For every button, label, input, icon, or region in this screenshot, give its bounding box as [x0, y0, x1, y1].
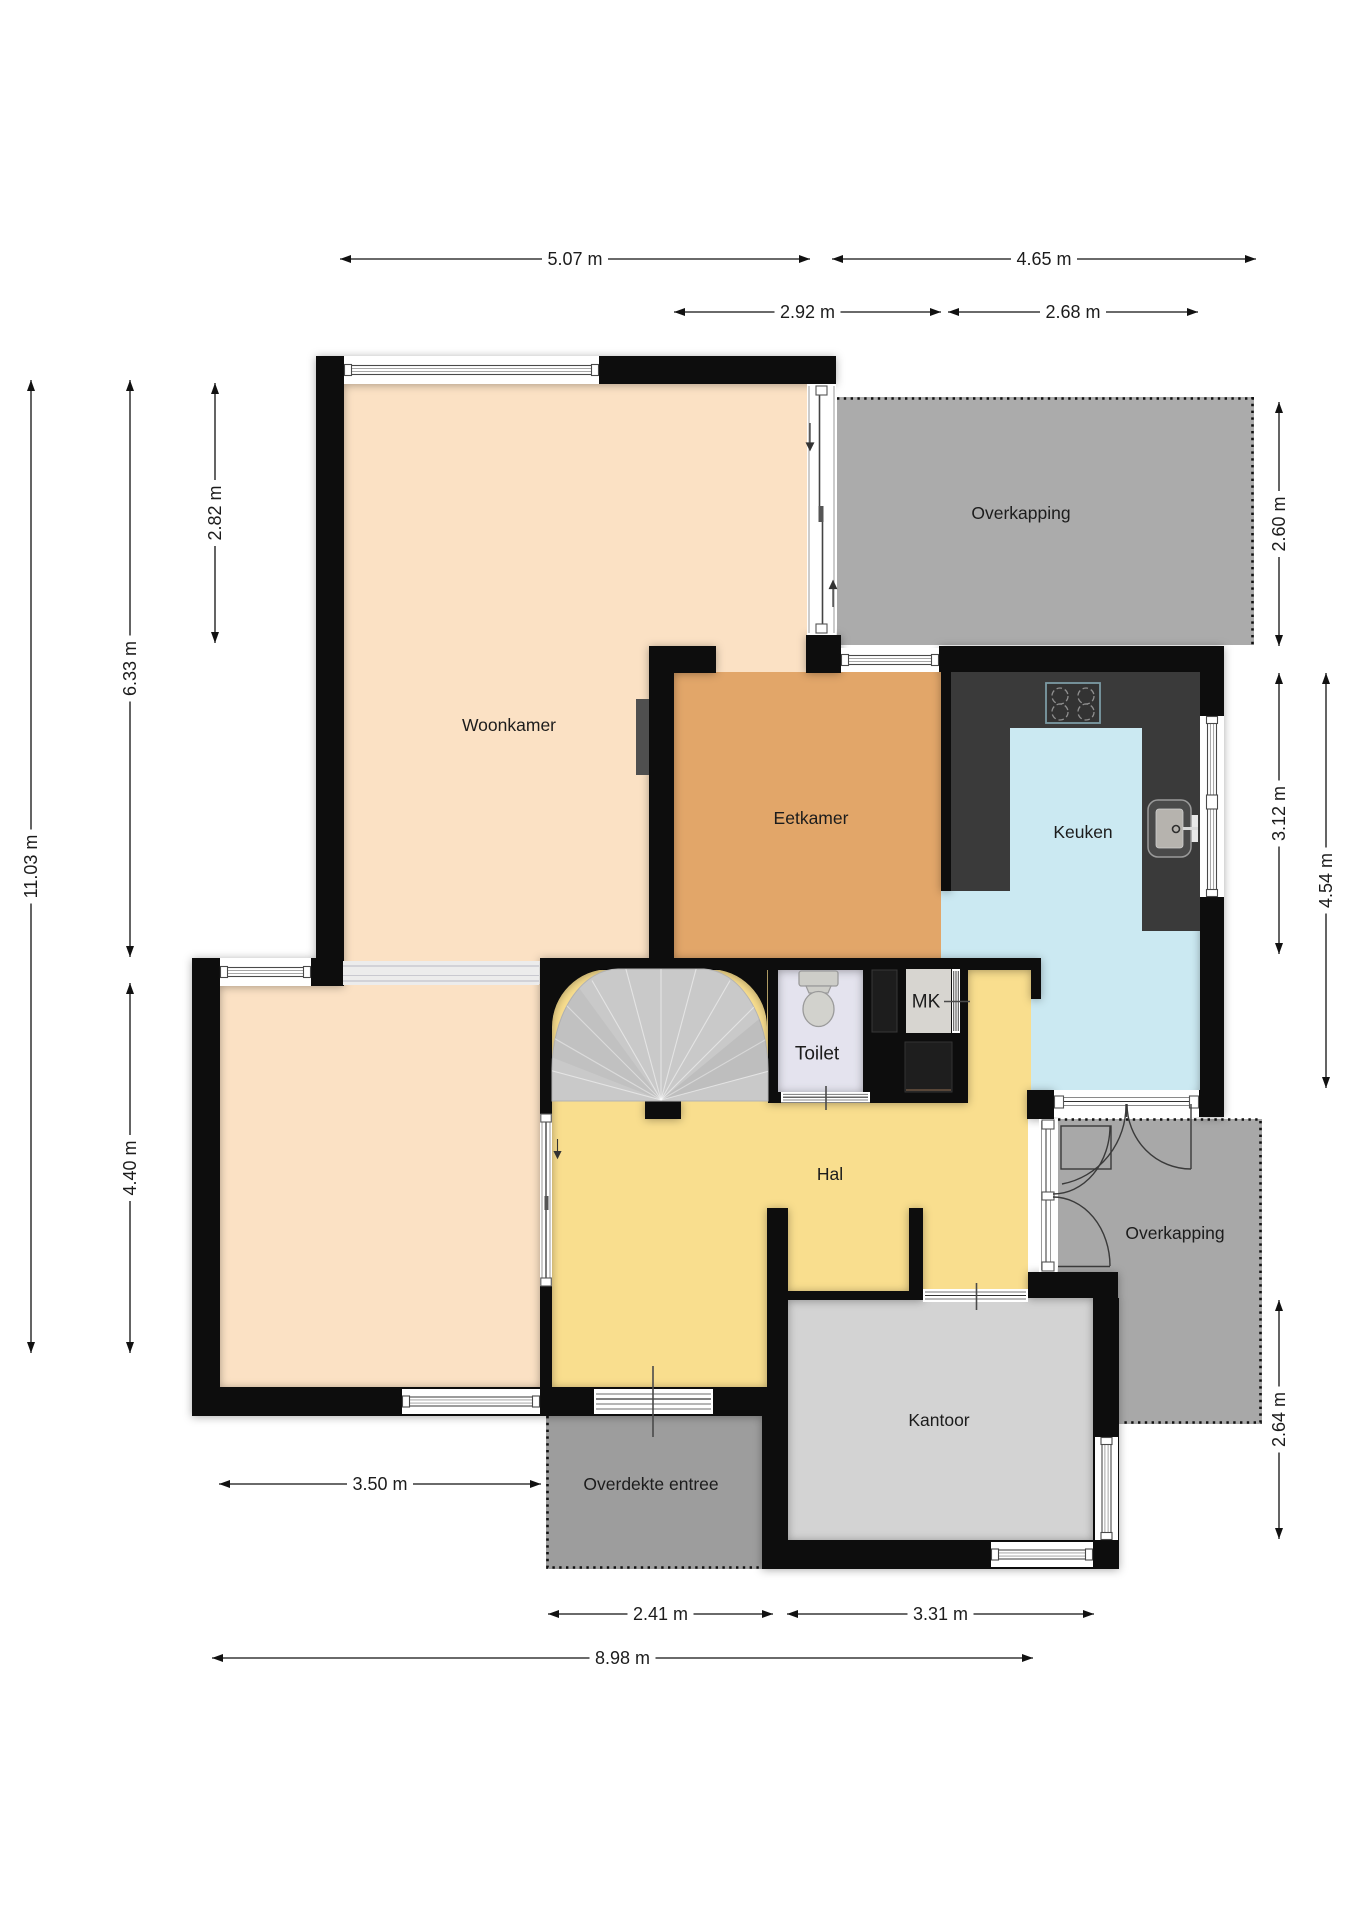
svg-text:2.82 m: 2.82 m: [205, 485, 225, 540]
svg-text:5.07 m: 5.07 m: [547, 249, 602, 269]
svg-text:2.41 m: 2.41 m: [633, 1604, 688, 1624]
svg-text:2.64 m: 2.64 m: [1269, 1392, 1289, 1447]
svg-text:11.03 m: 11.03 m: [21, 835, 41, 899]
svg-text:Woonkamer: Woonkamer: [462, 715, 556, 735]
svg-text:MK: MK: [912, 992, 941, 1013]
svg-text:2.60 m: 2.60 m: [1269, 496, 1289, 551]
svg-text:Overdekte entree: Overdekte entree: [583, 1474, 718, 1494]
svg-text:4.65 m: 4.65 m: [1016, 249, 1071, 269]
svg-text:Overkapping: Overkapping: [1125, 1223, 1224, 1243]
svg-text:6.33 m: 6.33 m: [120, 641, 140, 696]
svg-text:3.31 m: 3.31 m: [913, 1604, 968, 1624]
svg-text:2.92 m: 2.92 m: [780, 302, 835, 322]
svg-text:Toilet: Toilet: [795, 1044, 840, 1065]
svg-text:2.68 m: 2.68 m: [1045, 302, 1100, 322]
svg-text:4.54 m: 4.54 m: [1316, 853, 1336, 908]
svg-text:Eetkamer: Eetkamer: [774, 808, 849, 828]
svg-text:Overkapping: Overkapping: [971, 503, 1070, 523]
svg-text:8.98 m: 8.98 m: [595, 1648, 650, 1668]
svg-text:Kantoor: Kantoor: [908, 1410, 969, 1430]
svg-text:3.12 m: 3.12 m: [1269, 786, 1289, 841]
svg-text:3.50 m: 3.50 m: [352, 1474, 407, 1494]
svg-text:4.40 m: 4.40 m: [120, 1140, 140, 1195]
svg-text:Hal: Hal: [817, 1164, 843, 1184]
svg-text:Keuken: Keuken: [1053, 822, 1112, 842]
